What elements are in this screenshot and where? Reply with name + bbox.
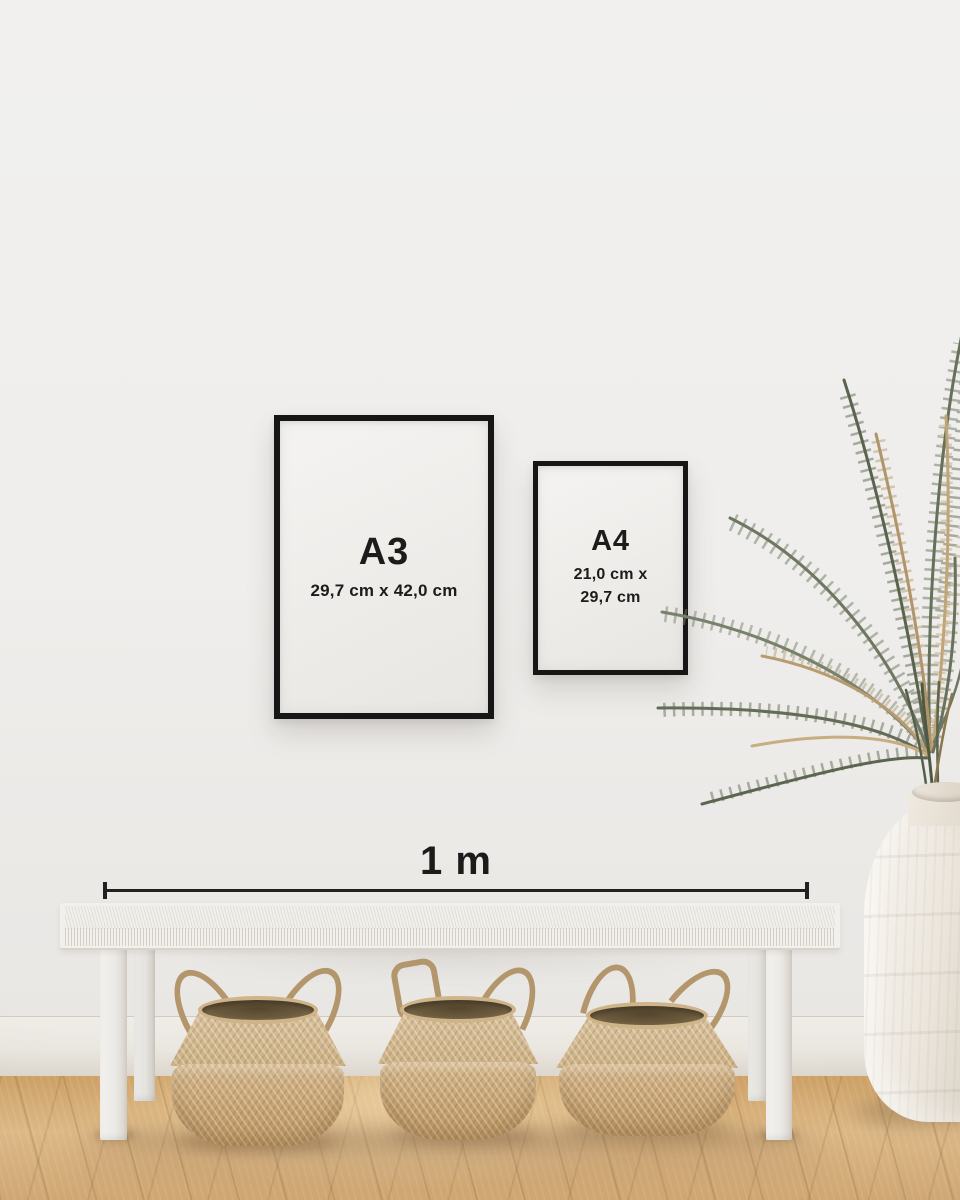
room-scene: A3 29,7 cm x 42,0 cm A4 21,0 cm x 29,7 c… [0, 0, 960, 1200]
floor-vase [864, 800, 960, 1122]
basket-body-lower [172, 1064, 344, 1146]
palm-plant [630, 322, 960, 822]
basket-body-lower [380, 1062, 536, 1140]
poster-frame-a3: A3 29,7 cm x 42,0 cm [274, 415, 494, 719]
basket-right [556, 964, 738, 1136]
basket-opening [400, 996, 516, 1023]
bench-seat [60, 903, 840, 950]
basket-left [170, 962, 346, 1146]
basket-opening [198, 996, 318, 1024]
a3-size-label: A3 [359, 533, 410, 571]
scale-bar-left-tick [103, 882, 107, 899]
basket-middle [378, 960, 538, 1140]
scale-bar-right-tick [805, 882, 809, 899]
a3-size-dimensions: 29,7 cm x 42,0 cm [310, 581, 457, 601]
bench-leg-back-left [134, 948, 155, 1101]
scale-bar: 1 m [103, 841, 809, 892]
basket-opening [586, 1002, 708, 1029]
basket-body-lower [559, 1064, 735, 1136]
a4-size-label: A4 [591, 527, 630, 556]
bench-leg-back-right [748, 948, 767, 1101]
poster-a3: A3 29,7 cm x 42,0 cm [280, 421, 488, 713]
bench-leg-front-left [100, 948, 127, 1140]
scale-bar-line [103, 889, 809, 892]
scale-bar-label: 1 m [103, 841, 809, 881]
bench-leg-front-right [766, 948, 792, 1140]
